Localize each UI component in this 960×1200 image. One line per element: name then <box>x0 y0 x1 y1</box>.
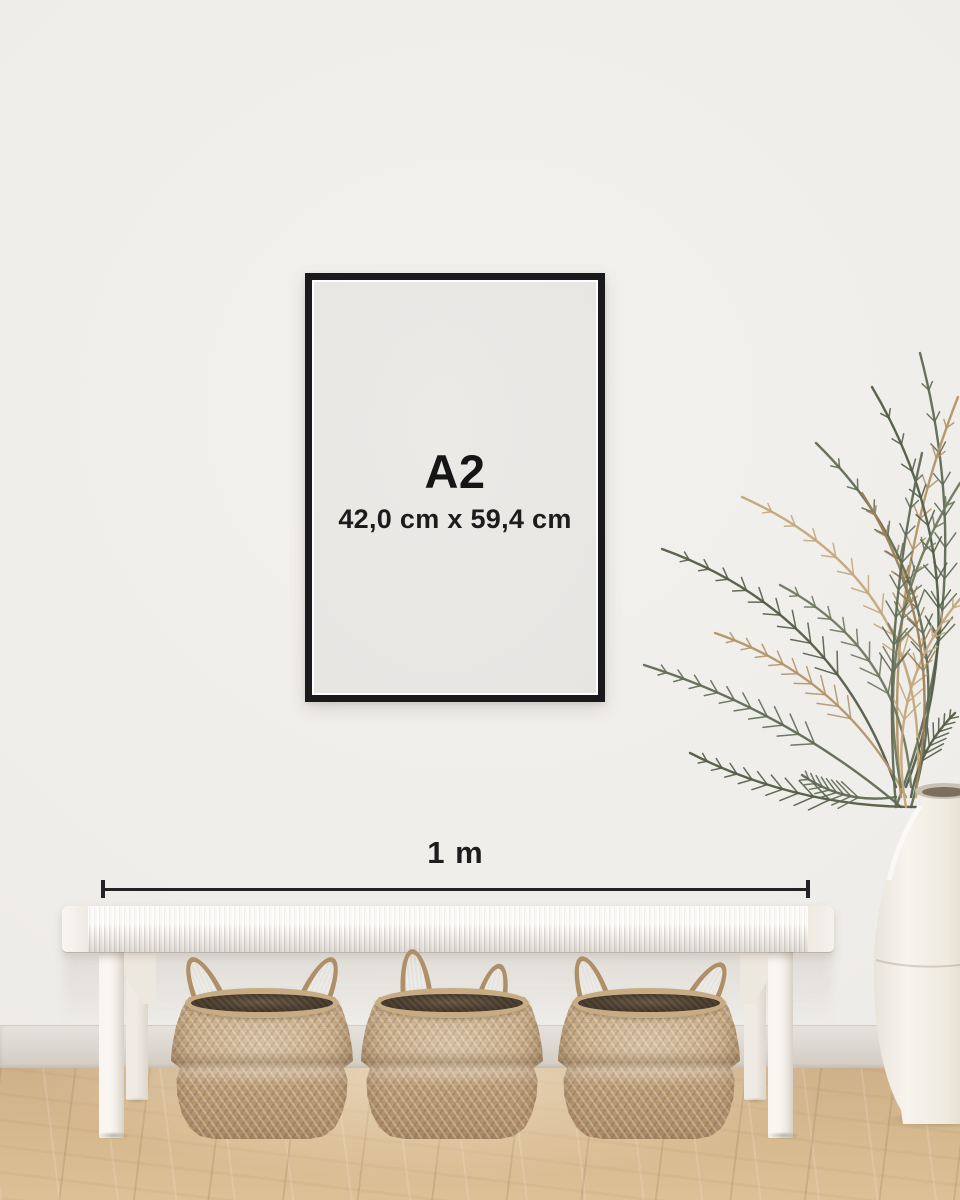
ruler-line <box>103 888 808 891</box>
basket-opening <box>572 988 726 1018</box>
bench-leg-front-right <box>768 948 793 1138</box>
poster-size-label: A2 <box>424 448 485 495</box>
ruler-label: 1 m <box>103 837 808 868</box>
basket-right <box>558 997 740 1139</box>
ruler-tick-right <box>806 880 810 898</box>
leg-shadow <box>90 1130 136 1141</box>
leg-shadow <box>120 1096 154 1105</box>
leg-shadow <box>760 1130 806 1141</box>
poster-frame: A2 42,0 cm x 59,4 cm <box>305 273 605 702</box>
scene: A2 42,0 cm x 59,4 cm 1 m <box>0 0 960 1200</box>
basket-left <box>171 997 353 1139</box>
basket-body <box>171 997 353 1139</box>
bench-seat <box>62 906 834 952</box>
bench-leg-front-left <box>99 948 124 1138</box>
basket-body <box>361 997 543 1139</box>
palm-plant <box>620 335 960 835</box>
basket-opening <box>375 988 529 1018</box>
ruler-tick-left <box>101 880 105 898</box>
vase <box>856 780 960 1140</box>
basket-body <box>558 997 740 1139</box>
basket-opening <box>185 988 339 1018</box>
poster-dimensions-label: 42,0 cm x 59,4 cm <box>338 506 571 533</box>
poster-content: A2 42,0 cm x 59,4 cm <box>312 280 598 695</box>
leg-shadow <box>738 1096 772 1105</box>
basket-middle <box>361 997 543 1139</box>
vase-body <box>874 782 960 1124</box>
